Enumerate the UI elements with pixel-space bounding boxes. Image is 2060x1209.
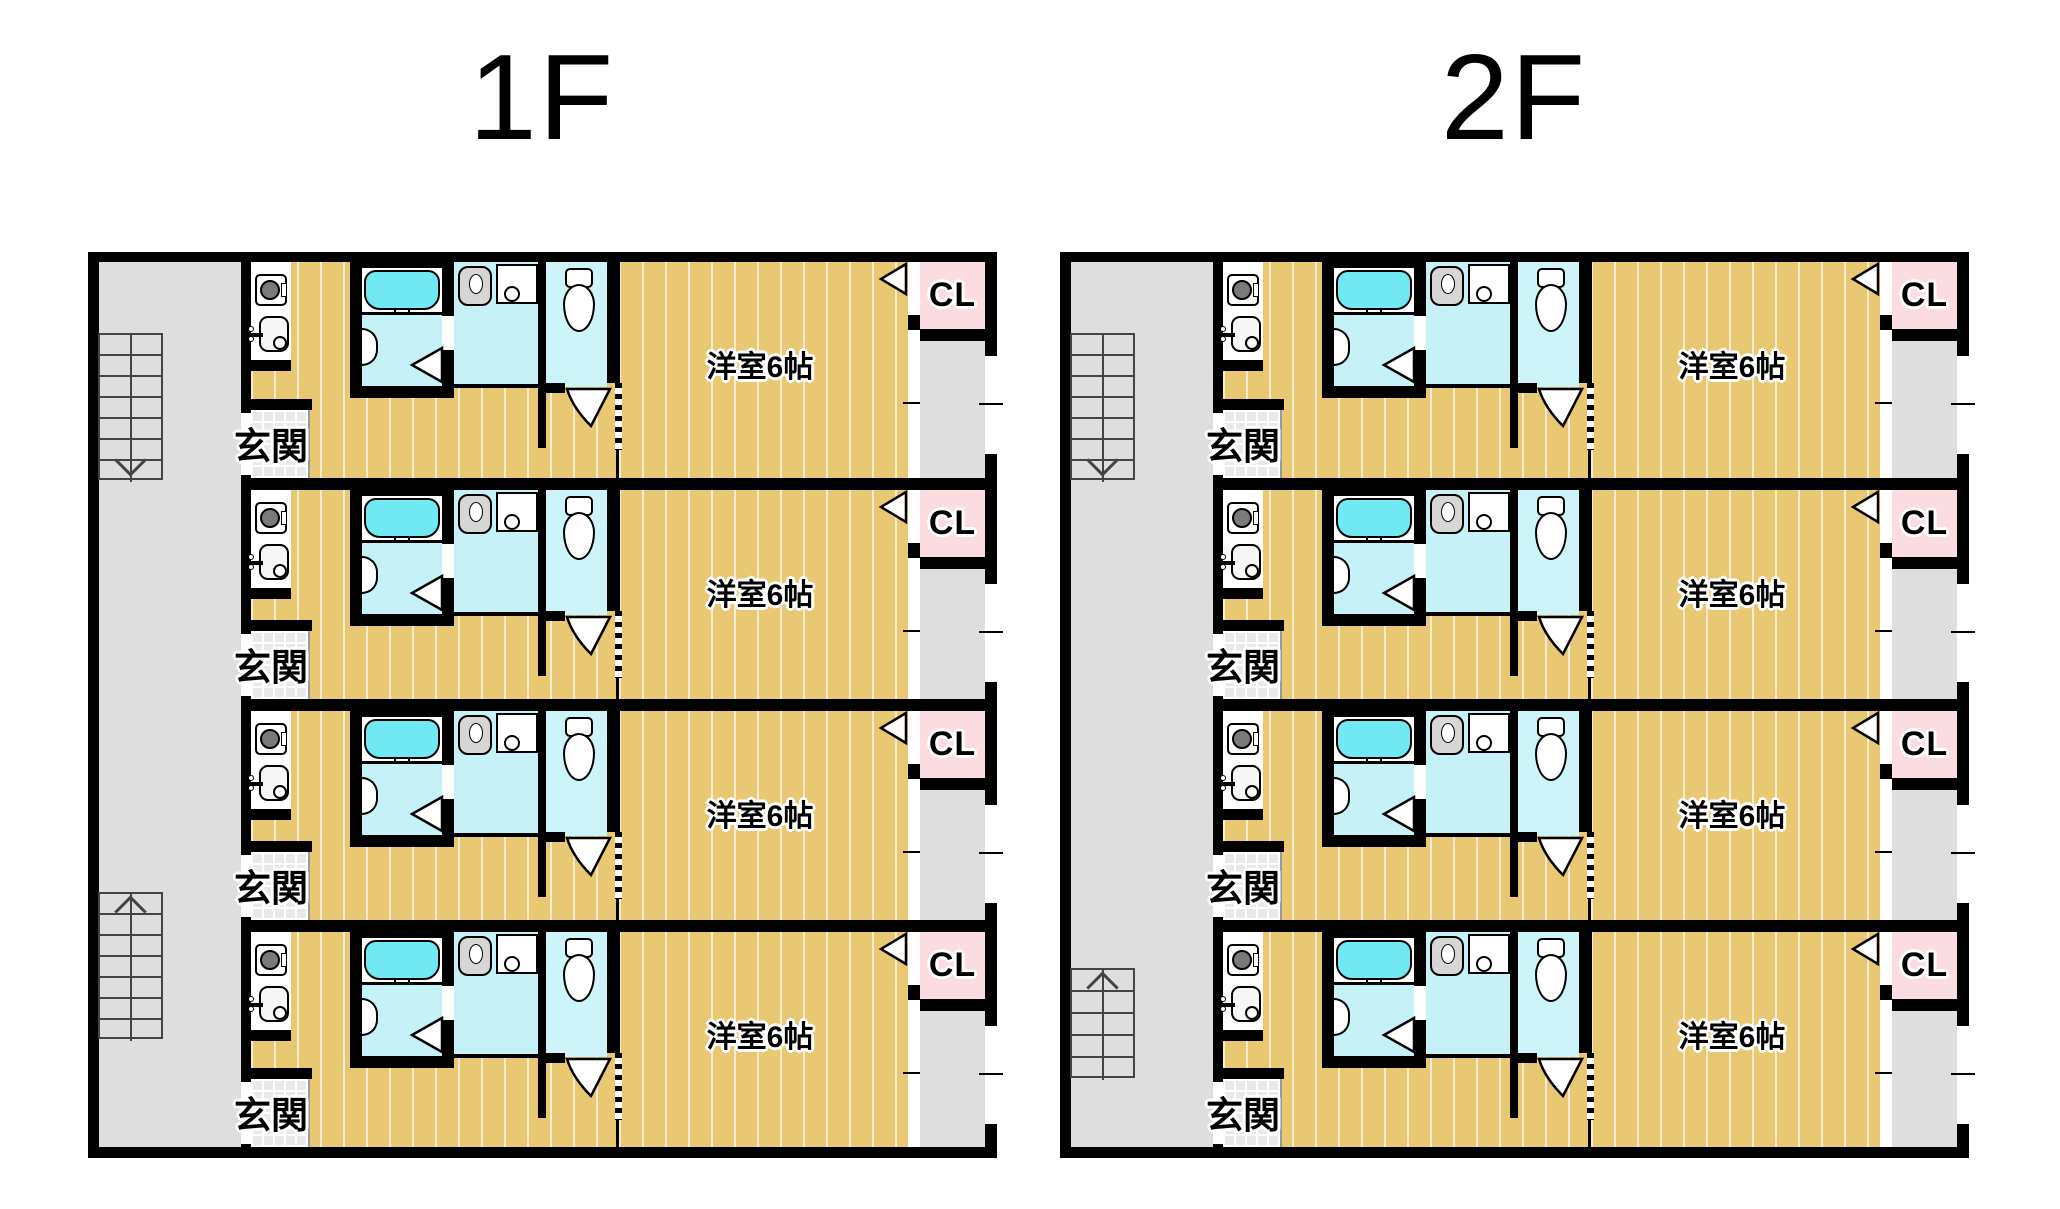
sink-knob-1 — [248, 996, 254, 1002]
staircase — [98, 333, 163, 480]
toilet-left-wall — [1510, 490, 1518, 676]
toilet-left-wall — [1510, 932, 1518, 1118]
sink-drain — [273, 1006, 287, 1020]
bath-door-wedge — [1380, 795, 1416, 833]
closet-bottom-wall — [920, 778, 997, 790]
main-room-label: 洋室6帖 — [1652, 349, 1812, 387]
main-room-label: 洋室6帖 — [680, 1019, 840, 1057]
room-partition-wall — [1579, 262, 1592, 383]
sink-knob-1 — [248, 554, 254, 560]
unit: 玄関洋室6帖CL — [1060, 490, 1969, 699]
toilet-bottom-stub — [538, 611, 565, 621]
washing-machine-drum — [260, 729, 280, 749]
kitchen-sink-icon — [259, 986, 289, 1022]
wash-basin-oval — [469, 723, 483, 743]
band-wall-chunk — [908, 985, 920, 1000]
entrance-label: 玄関 — [1203, 1095, 1283, 1137]
wash-basin-icon — [458, 494, 492, 534]
toilet-left-wall — [1510, 262, 1518, 448]
kitchen-sink-icon — [1231, 765, 1261, 801]
main-room-label: 洋室6帖 — [1652, 1019, 1812, 1057]
bath-door-wedge — [408, 795, 444, 833]
entrance-label: 玄関 — [231, 426, 311, 468]
outer-window-tick — [979, 1073, 1003, 1075]
utility-wall-stub — [241, 809, 291, 820]
main-room-label: 洋室6帖 — [1652, 577, 1812, 615]
outer-window-tick — [1951, 852, 1975, 854]
bath-door-wedge — [1380, 574, 1416, 612]
bath-door-wedge — [1380, 346, 1416, 384]
entrance-label: 玄関 — [1203, 426, 1283, 468]
room-partition-wall — [1579, 490, 1592, 611]
utility-wall-stub — [1213, 588, 1263, 599]
sink-drain — [273, 564, 287, 578]
utility-wall-stub — [1213, 809, 1263, 820]
entrance-wall-stub — [241, 399, 312, 410]
balcony-window-band — [1880, 330, 1892, 478]
bath-door-opening — [442, 316, 454, 350]
entrance-label: 玄関 — [231, 868, 311, 910]
sink-drain — [1245, 1006, 1259, 1020]
room-partition-wall — [607, 490, 620, 611]
unit: 玄関洋室6帖CL — [1060, 932, 1969, 1147]
toilet-bottom-stub — [538, 383, 565, 393]
band-wall-chunk — [1880, 764, 1892, 779]
entrance-wall-stub — [1213, 841, 1284, 852]
band-wall-chunk — [908, 315, 920, 330]
balcony — [920, 790, 985, 920]
balcony-window-band — [908, 779, 920, 920]
utility-wall-stub — [241, 588, 291, 599]
closet-bottom-wall — [1892, 329, 1969, 341]
bath-door-wedge — [408, 346, 444, 384]
washroom-step-line — [454, 612, 538, 616]
sliding-door-dashed — [615, 832, 622, 899]
toilet-door-arc — [565, 615, 612, 657]
bath-door-wedge — [1380, 1016, 1416, 1054]
stair-direction-arrow-down — [1086, 444, 1119, 477]
wash-basin-icon — [1430, 936, 1464, 976]
staircase — [1070, 968, 1135, 1078]
closet-sliding-band — [908, 711, 920, 764]
staircase — [1070, 333, 1135, 480]
closet-door-wedge — [878, 933, 908, 965]
washing-machine-drum — [1232, 729, 1252, 749]
washroom-counter-circle — [504, 514, 520, 530]
room-partition-wall — [607, 932, 620, 1053]
toilet-door-arc — [1537, 836, 1584, 878]
outer-window-tick — [979, 403, 1003, 405]
toilet-left-wall — [1510, 711, 1518, 897]
floor-title-1f: 1F — [342, 30, 742, 164]
unit: 玄関洋室6帖CL — [88, 932, 997, 1147]
kitchen-sink-icon — [259, 544, 289, 580]
separator-wall — [241, 920, 997, 932]
washroom-step-line — [454, 833, 538, 837]
wash-basin-icon — [458, 266, 492, 306]
washing-machine-drum — [1232, 508, 1252, 528]
toilet-door-arc — [1537, 615, 1584, 657]
closet-door-wedge — [878, 263, 908, 295]
closet-door-wedge — [1850, 933, 1880, 965]
wash-basin-icon — [1430, 494, 1464, 534]
wash-basin-oval — [1441, 274, 1455, 294]
room-partition-wall — [607, 262, 620, 383]
entrance-wall-stub — [1213, 1068, 1284, 1079]
floorplan-1F: 玄関洋室6帖CL玄関洋室6帖CL玄関洋室6帖CL玄関洋室6帖CL — [88, 252, 997, 1158]
washroom-step-line — [454, 384, 538, 388]
closet-label: CL — [1892, 946, 1957, 984]
wash-basin-oval — [469, 502, 483, 522]
stair-direction-arrow-up — [114, 895, 147, 928]
washing-machine-slot — [1253, 732, 1259, 746]
outer-window — [1957, 1024, 1969, 1126]
washing-machine-icon — [1227, 723, 1259, 755]
stair-direction-arrow-up — [1086, 971, 1119, 1004]
band-wall-chunk — [908, 764, 920, 779]
balcony-window-band — [1880, 558, 1892, 699]
washing-machine-slot — [281, 511, 287, 525]
closet-label: CL — [1892, 276, 1957, 314]
bathtub-icon — [1336, 719, 1412, 759]
outer-window — [1957, 582, 1969, 684]
partition-thin-line — [616, 678, 619, 699]
partition-thin-line — [1588, 450, 1591, 478]
entrance-wall-stub — [1213, 399, 1284, 410]
partition-thin-line — [616, 899, 619, 920]
toilet-door-arc — [1537, 1057, 1584, 1099]
balcony-window-band — [908, 330, 920, 478]
partition-thin-line — [1588, 1120, 1591, 1147]
washing-machine-icon — [255, 723, 287, 755]
bathtub-icon — [1336, 498, 1412, 538]
entrance-label: 玄関 — [231, 1095, 311, 1137]
washing-machine-icon — [255, 944, 287, 976]
wash-basin-icon — [1430, 715, 1464, 755]
outer-window — [985, 582, 997, 684]
balcony — [920, 341, 985, 478]
toilet-left-wall — [538, 490, 546, 676]
balcony — [1892, 1011, 1957, 1147]
closet-label: CL — [920, 504, 985, 542]
sink-knob-2 — [1220, 785, 1226, 791]
closet-door-wedge — [878, 491, 908, 523]
bath-door-opening — [1414, 765, 1426, 799]
bathtub-icon — [364, 270, 440, 310]
sliding-door-dashed — [615, 1053, 622, 1120]
toilet-bottom-stub — [1510, 611, 1537, 621]
toilet-door-arc — [565, 1057, 612, 1099]
washroom-step-line — [1426, 612, 1510, 616]
washing-machine-drum — [1232, 950, 1252, 970]
bathtub-icon — [1336, 270, 1412, 310]
utility-wall-stub — [241, 1030, 291, 1041]
separator-wall — [1213, 478, 1969, 490]
sink-knob-1 — [1220, 554, 1226, 560]
closet-sliding-band — [908, 262, 920, 315]
kitchen-sink-icon — [1231, 316, 1261, 352]
washroom-counter-circle — [504, 956, 520, 972]
unit: 玄関洋室6帖CL — [1060, 262, 1969, 478]
washing-machine-slot — [281, 953, 287, 967]
entrance-label: 玄関 — [231, 647, 311, 689]
band-wall-chunk — [1880, 315, 1892, 330]
unit: 玄関洋室6帖CL — [1060, 711, 1969, 920]
washing-machine-icon — [1227, 502, 1259, 534]
bath-door-wedge — [408, 574, 444, 612]
washroom-counter-circle — [504, 286, 520, 302]
sink-knob-1 — [1220, 996, 1226, 1002]
closet-sliding-band — [908, 490, 920, 543]
stair-direction-arrow-down — [114, 444, 147, 477]
closet-bottom-wall — [1892, 557, 1969, 569]
washroom-counter-circle — [1476, 735, 1492, 751]
closet-sliding-band — [1880, 490, 1892, 543]
bath-door-opening — [442, 544, 454, 578]
washing-machine-icon — [255, 502, 287, 534]
washing-machine-icon — [255, 274, 287, 306]
washing-machine-slot — [281, 283, 287, 297]
sink-drain — [273, 336, 287, 350]
sliding-door-dashed — [1587, 611, 1594, 678]
bath-door-opening — [442, 765, 454, 799]
toilet-left-wall — [538, 711, 546, 897]
band-wall-chunk — [908, 543, 920, 558]
outer-window-tick — [1951, 631, 1975, 633]
kitchen-sink-icon — [259, 765, 289, 801]
bath-door-opening — [1414, 316, 1426, 350]
closet-bottom-wall — [920, 999, 997, 1011]
bathtub-icon — [1336, 940, 1412, 980]
washing-machine-icon — [1227, 944, 1259, 976]
outer-window — [1957, 354, 1969, 456]
room-partition-wall — [1579, 932, 1592, 1053]
sink-knob-2 — [1220, 336, 1226, 342]
balcony-window-band — [908, 558, 920, 699]
washroom-counter-circle — [504, 735, 520, 751]
entrance-wall-stub — [241, 841, 312, 852]
closet-sliding-band — [1880, 932, 1892, 985]
toilet-bottom-stub — [1510, 383, 1537, 393]
separator-wall — [1213, 699, 1969, 711]
entrance-wall-stub — [1213, 620, 1284, 631]
main-room-label: 洋室6帖 — [1652, 798, 1812, 836]
bath-door-opening — [1414, 986, 1426, 1020]
partition-thin-line — [616, 1120, 619, 1147]
sink-knob-2 — [1220, 1006, 1226, 1012]
sink-drain — [1245, 564, 1259, 578]
wash-basin-oval — [1441, 723, 1455, 743]
room-partition-wall — [1579, 711, 1592, 832]
entrance-label: 玄関 — [1203, 647, 1283, 689]
sink-drain — [1245, 336, 1259, 350]
entrance-wall-stub — [241, 620, 312, 631]
washroom-step-line — [1426, 833, 1510, 837]
washing-machine-drum — [1232, 280, 1252, 300]
washroom-step-line — [1426, 1054, 1510, 1058]
unit: 玄関洋室6帖CL — [88, 262, 997, 478]
entrance-wall-stub — [241, 1068, 312, 1079]
room-partition-wall — [607, 711, 620, 832]
toilet-door-arc — [565, 387, 612, 429]
kitchen-sink-icon — [1231, 986, 1261, 1022]
wash-basin-icon — [458, 715, 492, 755]
kitchen-sink-icon — [259, 316, 289, 352]
utility-wall-stub — [241, 360, 291, 371]
outer-window-tick — [1951, 403, 1975, 405]
toilet-bottom-stub — [538, 832, 565, 842]
outer-window-tick — [979, 631, 1003, 633]
sliding-door-dashed — [615, 611, 622, 678]
washroom-step-line — [1426, 384, 1510, 388]
separator-wall — [1213, 920, 1969, 932]
closet-door-wedge — [1850, 491, 1880, 523]
wash-basin-oval — [1441, 502, 1455, 522]
closet-door-wedge — [1850, 712, 1880, 744]
kitchen-sink-icon — [1231, 544, 1261, 580]
unit: 玄関洋室6帖CL — [88, 490, 997, 699]
washing-machine-slot — [1253, 283, 1259, 297]
closet-label: CL — [1892, 725, 1957, 763]
floorplan-canvas: 1F 2F 玄関洋室6帖CL玄関洋室6帖CL玄関洋室6帖CL玄関洋室6帖CL玄関… — [0, 0, 2060, 1209]
band-wall-chunk — [1880, 543, 1892, 558]
wash-basin-icon — [458, 936, 492, 976]
closet-label: CL — [920, 725, 985, 763]
balcony — [1892, 341, 1957, 478]
sink-knob-2 — [248, 564, 254, 570]
wash-basin-oval — [1441, 944, 1455, 964]
bathtub-icon — [364, 719, 440, 759]
utility-wall-stub — [1213, 1030, 1263, 1041]
sliding-door-dashed — [615, 383, 622, 450]
sink-knob-2 — [248, 336, 254, 342]
closet-label: CL — [920, 276, 985, 314]
unit: 玄関洋室6帖CL — [88, 711, 997, 920]
washroom-counter-circle — [1476, 956, 1492, 972]
sink-knob-1 — [1220, 326, 1226, 332]
sink-drain — [273, 785, 287, 799]
balcony — [920, 569, 985, 699]
closet-bottom-wall — [1892, 999, 1969, 1011]
outer-window — [985, 354, 997, 456]
bath-door-wedge — [408, 1016, 444, 1054]
closet-label: CL — [1892, 504, 1957, 542]
outer-window-tick — [979, 852, 1003, 854]
toilet-bottom-stub — [538, 1053, 565, 1063]
bath-door-opening — [1414, 544, 1426, 578]
outer-window — [985, 803, 997, 905]
closet-label: CL — [920, 946, 985, 984]
band-wall-chunk — [1880, 985, 1892, 1000]
outer-window — [985, 1024, 997, 1126]
balcony-window-band — [1880, 779, 1892, 920]
utility-wall-stub — [1213, 360, 1263, 371]
wash-basin-icon — [1430, 266, 1464, 306]
bathtub-icon — [364, 940, 440, 980]
floor-title-2f: 2F — [1314, 30, 1714, 164]
closet-sliding-band — [1880, 711, 1892, 764]
sink-knob-1 — [248, 775, 254, 781]
toilet-left-wall — [538, 932, 546, 1118]
sink-knob-1 — [1220, 775, 1226, 781]
partition-thin-line — [1588, 899, 1591, 920]
sink-knob-1 — [248, 326, 254, 332]
separator-wall — [241, 699, 997, 711]
closet-sliding-band — [1880, 262, 1892, 315]
washing-machine-drum — [260, 280, 280, 300]
toilet-left-wall — [538, 262, 546, 448]
wash-basin-oval — [469, 944, 483, 964]
closet-door-wedge — [1850, 263, 1880, 295]
closet-bottom-wall — [920, 329, 997, 341]
washing-machine-slot — [1253, 511, 1259, 525]
main-room-label: 洋室6帖 — [680, 577, 840, 615]
closet-door-wedge — [878, 712, 908, 744]
washroom-counter-circle — [1476, 286, 1492, 302]
outer-window — [1957, 803, 1969, 905]
toilet-door-arc — [565, 836, 612, 878]
main-room-label: 洋室6帖 — [680, 349, 840, 387]
closet-sliding-band — [908, 932, 920, 985]
washing-machine-slot — [1253, 953, 1259, 967]
sink-knob-2 — [248, 785, 254, 791]
toilet-bottom-stub — [1510, 1053, 1537, 1063]
sink-drain — [1245, 785, 1259, 799]
washroom-counter-circle — [1476, 514, 1492, 530]
sink-knob-2 — [1220, 564, 1226, 570]
partition-thin-line — [616, 450, 619, 478]
washing-machine-drum — [260, 508, 280, 528]
separator-wall — [241, 478, 997, 490]
bath-door-opening — [442, 986, 454, 1020]
bathtub-icon — [364, 498, 440, 538]
partition-thin-line — [1588, 678, 1591, 699]
outer-window-tick — [1951, 1073, 1975, 1075]
washing-machine-icon — [1227, 274, 1259, 306]
toilet-bottom-stub — [1510, 832, 1537, 842]
sliding-door-dashed — [1587, 383, 1594, 450]
sliding-door-dashed — [1587, 1053, 1594, 1120]
entrance-label: 玄関 — [1203, 868, 1283, 910]
balcony — [920, 1011, 985, 1147]
toilet-door-arc — [1537, 387, 1584, 429]
closet-bottom-wall — [1892, 778, 1969, 790]
main-room-label: 洋室6帖 — [680, 798, 840, 836]
balcony — [1892, 790, 1957, 920]
floorplan-2F: 玄関洋室6帖CL玄関洋室6帖CL玄関洋室6帖CL玄関洋室6帖CL — [1060, 252, 1969, 1158]
balcony — [1892, 569, 1957, 699]
sliding-door-dashed — [1587, 832, 1594, 899]
sink-knob-2 — [248, 1006, 254, 1012]
closet-bottom-wall — [920, 557, 997, 569]
washing-machine-drum — [260, 950, 280, 970]
washing-machine-slot — [281, 732, 287, 746]
washroom-step-line — [454, 1054, 538, 1058]
staircase — [98, 892, 163, 1039]
wash-basin-oval — [469, 274, 483, 294]
